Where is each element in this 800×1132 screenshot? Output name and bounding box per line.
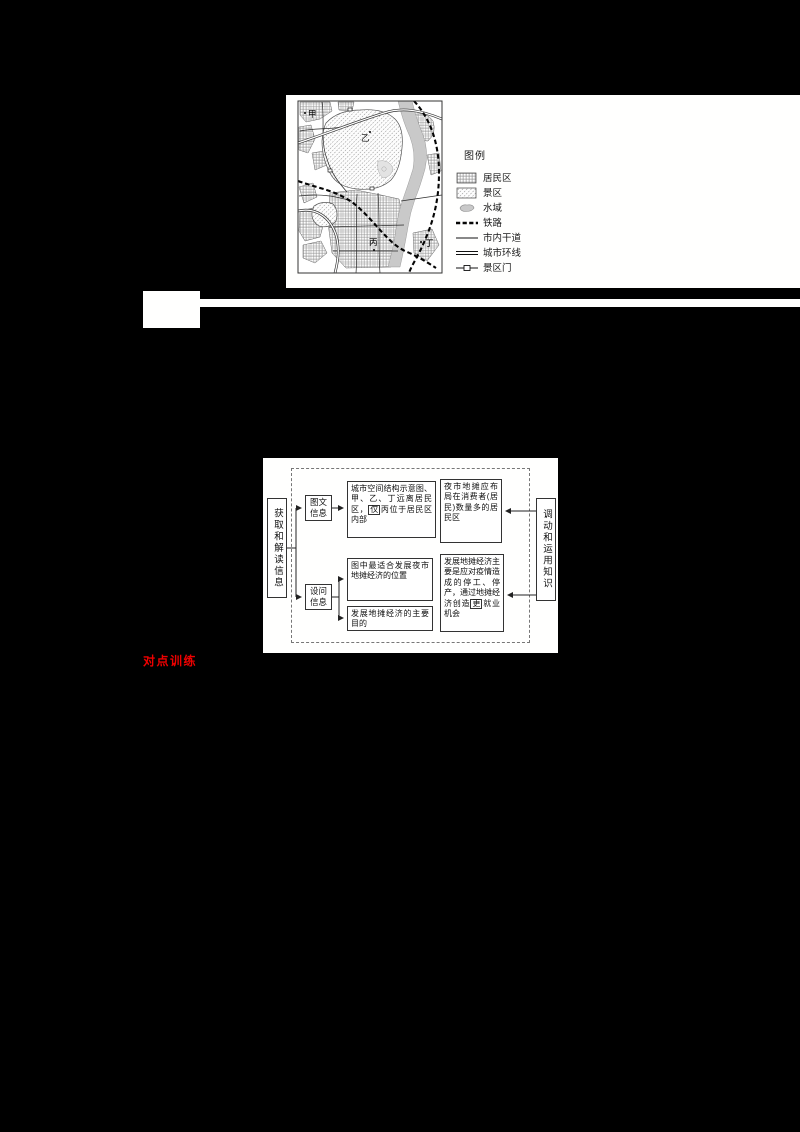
label-jia: 甲 (308, 109, 317, 119)
box-question-purpose: 发展地摊经济的主要目的 (347, 606, 433, 631)
water-swatch-icon (456, 201, 478, 213)
ring-road-swatch-icon (456, 246, 478, 258)
legend-label: 铁路 (483, 215, 502, 229)
label-ding: 丁 (425, 238, 434, 248)
flowchart-right-label: 调动和运用知识 (536, 498, 556, 601)
legend-item-railway: 铁路 (456, 214, 576, 229)
section-heading-red: 对点训练 (143, 652, 197, 669)
legend-label: 景区 (483, 185, 502, 199)
legend-item-ring-road: 城市环线 (456, 244, 576, 259)
railway-swatch-icon (456, 216, 478, 228)
box-night-market-layout: 夜市地摊应布局在消费者(居民)数量多的居民区 (440, 479, 502, 543)
legend-title: 图例 (464, 147, 576, 162)
textbook-page: 甲 乙 丙 丁 图例 居民区 (0, 0, 800, 1132)
map-legend: 图例 居民区 (456, 147, 576, 274)
legend-label: 水域 (483, 200, 502, 214)
box-map-structure-info: 城市空间结构示意图、甲、乙、丁远离居民区，仅丙位于居民区内部 (347, 481, 436, 538)
main-road-swatch-icon (456, 231, 478, 243)
boxed-keyword: 仅 (368, 505, 380, 516)
residential-swatch-icon (456, 171, 478, 183)
legend-item-residential: 居民区 (456, 169, 576, 184)
legend-label: 城市环线 (483, 245, 521, 259)
legend-item-gate: 景区门 (456, 259, 576, 274)
legend-item-water: 水域 (456, 199, 576, 214)
label-bing: 丙 (369, 237, 378, 247)
legend-label: 景区门 (483, 260, 512, 274)
box-question-location: 图中最适合发展夜市地摊经济的位置 (347, 558, 433, 601)
flowchart-left-label: 获取和解读信息 (267, 498, 287, 598)
legend-label: 居民区 (483, 170, 512, 184)
map-figure-panel: 甲 乙 丙 丁 图例 居民区 (286, 95, 800, 288)
legend-item-main-road: 市内干道 (456, 229, 576, 244)
box-stall-economy-purpose: 发展地摊经济主要是应对疫情造成的停工、停产，通过地摊经济创造更就业机会 (440, 554, 504, 632)
scenic-swatch-icon (456, 186, 478, 198)
gate-swatch-icon (456, 261, 478, 273)
boxed-keyword: 更 (470, 599, 482, 610)
legend-item-scenic: 景区 (456, 184, 576, 199)
node-question-info: 设问信息 (305, 584, 332, 610)
flowchart-panel: 获取和解读信息 调动和运用知识 图文信息 设问信息 城市空间结构示意图、甲、乙、… (263, 458, 558, 653)
horizontal-rule (199, 299, 800, 307)
label-yi: 乙 (361, 133, 370, 143)
node-image-text-info: 图文信息 (305, 495, 332, 521)
blank-label-box (143, 291, 200, 328)
legend-label: 市内干道 (483, 230, 521, 244)
